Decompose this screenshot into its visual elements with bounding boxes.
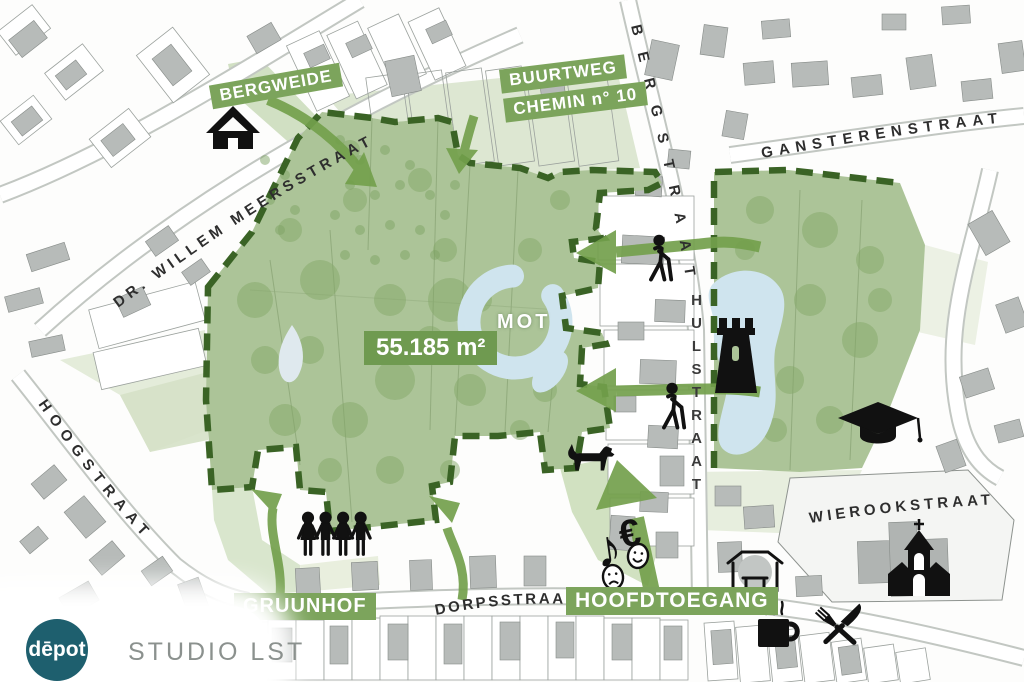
castle-tower-icon (715, 318, 757, 393)
site-plan-map: DR. WILLEM MEERSSTRAAT BERGSTRAAT GANSTE… (0, 0, 1024, 682)
house-icon (206, 106, 260, 149)
label-hoofdtoegang: HOOFDTOEGANG (566, 587, 778, 615)
street-label-hulstraat: HULSTRAAT (688, 292, 705, 499)
depot-logo: dēpot (26, 619, 88, 681)
site-area-label: 55.185 m² (364, 331, 497, 365)
studio-lst-logo: STUDIO LST (128, 638, 305, 667)
street-label-gansterenstraat: GANSTERENSTRAAT (760, 110, 1004, 162)
mot-label: MOT (497, 311, 550, 334)
